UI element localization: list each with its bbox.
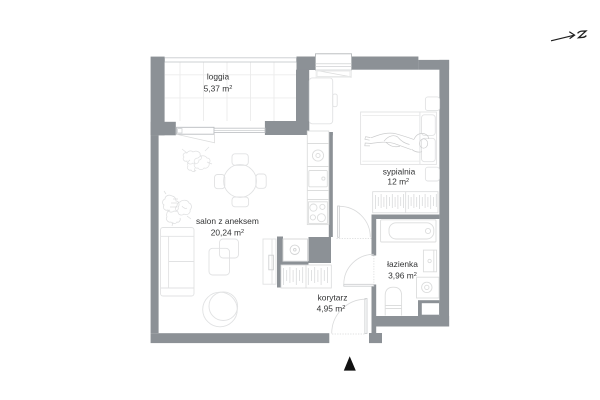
svg-text:4,95 m2: 4,95 m2: [317, 304, 346, 314]
svg-text:łazienka: łazienka: [387, 259, 418, 269]
svg-text:salon z aneksem: salon z aneksem: [196, 216, 259, 226]
svg-text:12 m2: 12 m2: [387, 177, 409, 187]
svg-text:loggia: loggia: [207, 72, 230, 82]
svg-text:3,96 m2: 3,96 m2: [388, 271, 417, 281]
svg-text:sypialnia: sypialnia: [383, 167, 416, 177]
svg-text:5,37 m2: 5,37 m2: [204, 84, 233, 94]
svg-text:korytarz: korytarz: [318, 293, 348, 303]
svg-text:20,24 m2: 20,24 m2: [211, 228, 244, 238]
